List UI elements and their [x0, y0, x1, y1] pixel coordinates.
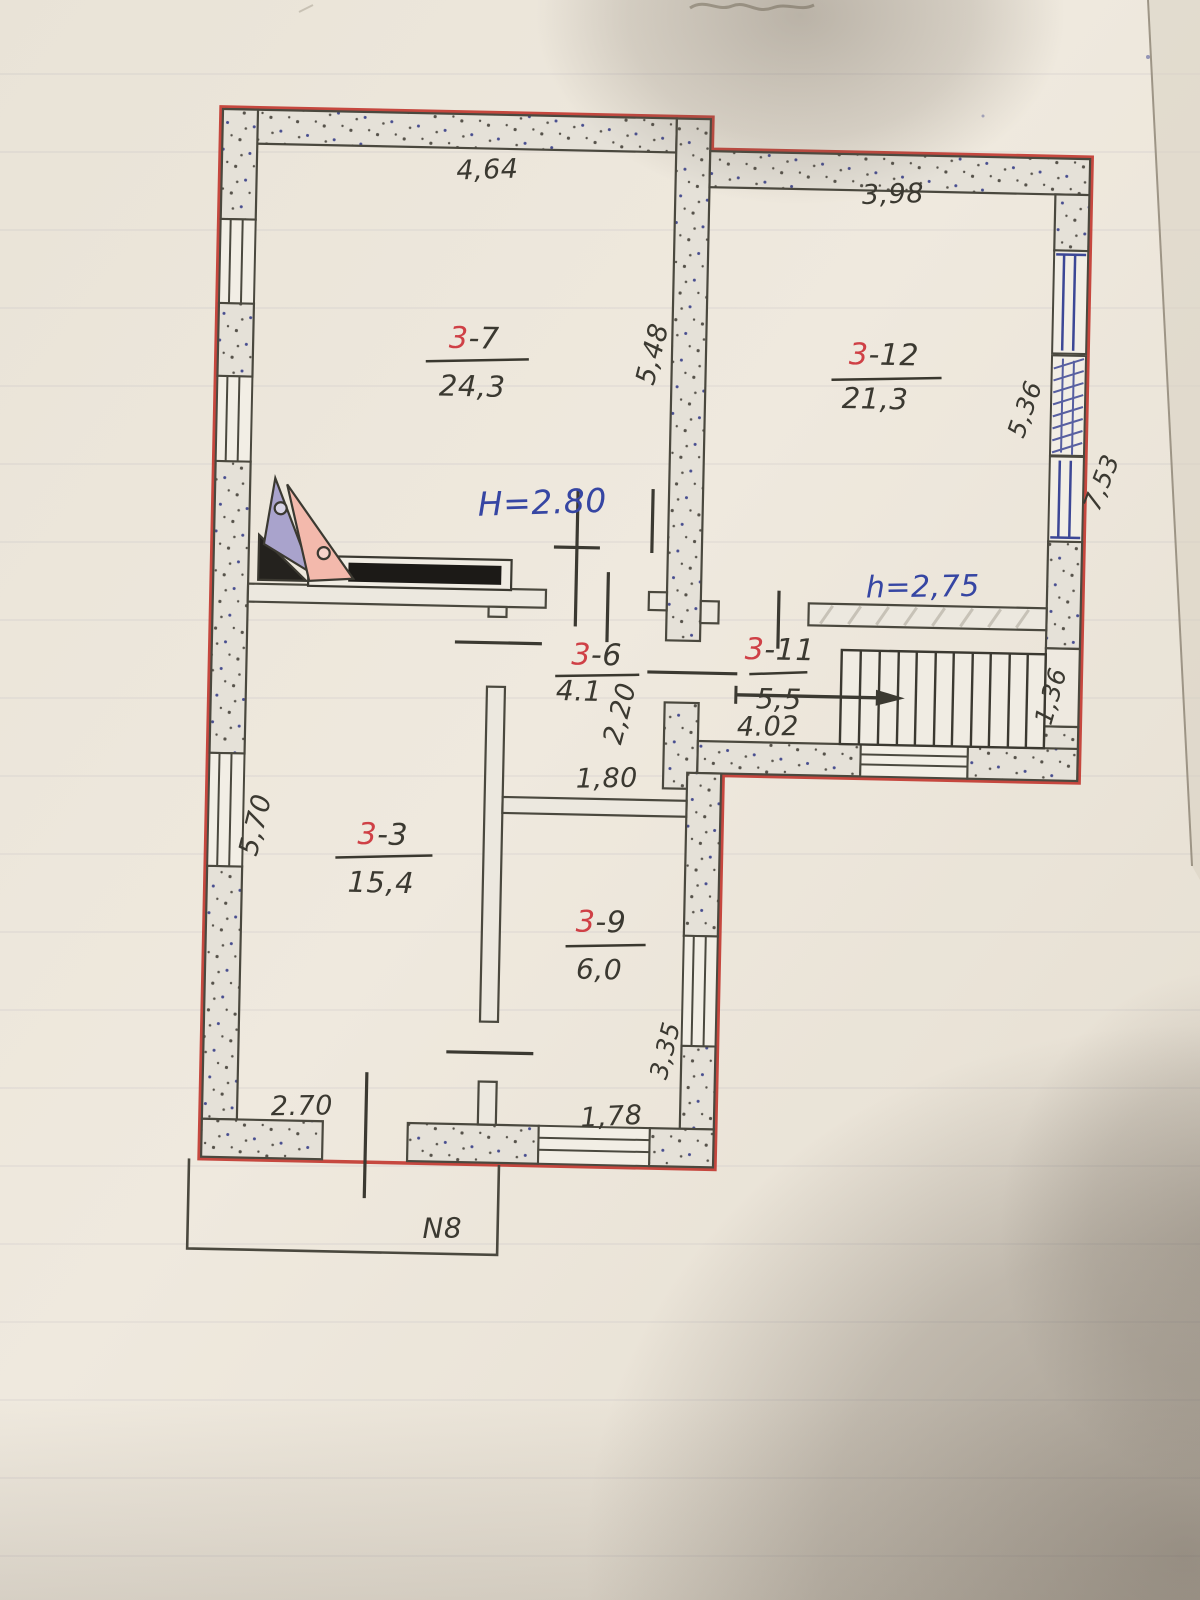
room-code-suffix: -9: [595, 905, 627, 941]
svg-text:3-7: 3-7: [449, 321, 500, 357]
room-code-prefix: 3: [575, 905, 595, 940]
door-tick: [647, 672, 737, 674]
room-code-prefix: 3: [449, 321, 469, 356]
door-tick: [455, 642, 542, 644]
dimension-room33-bottom: 2.70: [271, 1090, 334, 1122]
dimension-hall-width: 1,80: [576, 763, 639, 795]
door-tick: [607, 572, 608, 642]
partition-segment: [649, 592, 667, 610]
room-code-suffix: -7: [468, 321, 500, 357]
dimension-room39-bottom: 1,78: [580, 1100, 644, 1134]
room-code-suffix: -3: [377, 817, 409, 853]
room-code-prefix: 3: [357, 817, 377, 852]
wall-segment: [201, 1119, 323, 1160]
wall-segment: [217, 303, 254, 377]
svg-text:3-3: 3-3: [357, 817, 408, 853]
wall-segment: [202, 866, 242, 1120]
photo-shadow-bottom-strip: [0, 1400, 1200, 1600]
wall-segment: [210, 461, 251, 754]
ceiling-height-main: H=2.80: [477, 481, 607, 524]
ink-speck: [1146, 55, 1150, 59]
room-code-prefix: 3: [744, 632, 764, 667]
partition-segment: [488, 607, 506, 617]
door-tick: [652, 489, 653, 553]
room-code-prefix: 3: [571, 637, 591, 672]
svg-text:3-12: 3-12: [849, 337, 920, 373]
ceiling-height-secondary: h=2,75: [866, 569, 980, 606]
room-code-suffix: -11: [764, 632, 815, 668]
room-area: 24,3: [439, 369, 506, 404]
wall-segment: [221, 109, 258, 220]
room-code-suffix: -6: [591, 638, 623, 674]
wall-segment: [967, 747, 1078, 781]
room-area: 4.1: [556, 674, 603, 708]
partition-segment: [502, 797, 686, 817]
partition-segment: [478, 1082, 497, 1125]
partition-segment: [700, 601, 718, 623]
wall-segment: [1054, 194, 1089, 251]
room-code-prefix: 3: [849, 337, 869, 372]
dimension-stair-length: 4.02: [737, 711, 800, 743]
porch-label: N8: [422, 1212, 462, 1246]
partition-segment: [808, 603, 1046, 630]
furnace-ring: [318, 547, 330, 559]
wall-segment: [407, 1123, 539, 1164]
furnace-ring: [275, 502, 287, 514]
room-area: 15,4: [347, 865, 414, 900]
room-code-suffix: -12: [868, 338, 919, 374]
room-area: 6,0: [576, 953, 623, 987]
photographed-floor-plan: 3-7 24,3 3-12 21,3 3-6 4.1 3-11 5,5: [0, 0, 1200, 1600]
svg-text:3-6: 3-6: [571, 637, 622, 673]
svg-text:3-11: 3-11: [744, 632, 815, 668]
wall-segment: [1046, 541, 1082, 649]
wall-segment: [680, 1046, 716, 1130]
wall-segment: [649, 1128, 714, 1167]
hearth-black-bar: [348, 563, 501, 585]
wall-segment: [697, 741, 861, 776]
wall-segment: [684, 773, 721, 937]
door-tick: [554, 547, 600, 548]
svg-text:3-9: 3-9: [575, 905, 626, 941]
dimension-room37-top: 4,64: [456, 154, 519, 187]
door-tick: [446, 1052, 533, 1054]
room-area: 21,3: [841, 381, 908, 416]
